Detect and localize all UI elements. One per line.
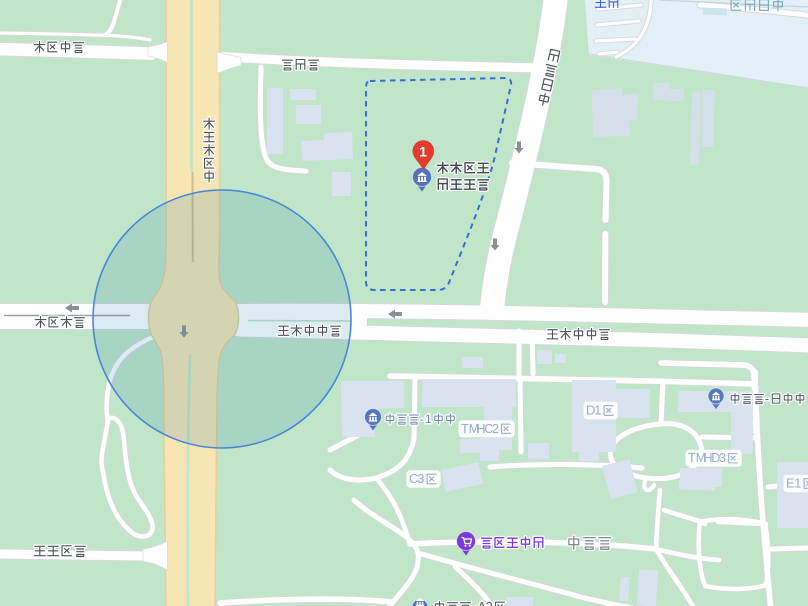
svg-text:3: 3 — [417, 471, 424, 486]
svg-text:1: 1 — [425, 412, 432, 426]
svg-text:-: - — [472, 599, 476, 606]
svg-text:1: 1 — [594, 403, 601, 418]
svg-text:-: - — [420, 412, 424, 426]
svg-text:2: 2 — [492, 422, 499, 436]
svg-text:3: 3 — [719, 451, 726, 465]
svg-text:-: - — [765, 391, 769, 405]
svg-text:1: 1 — [419, 144, 427, 160]
svg-text:1: 1 — [794, 476, 801, 491]
svg-text:T: T — [688, 451, 696, 465]
svg-text:2: 2 — [486, 599, 493, 606]
svg-text:T: T — [461, 422, 469, 436]
